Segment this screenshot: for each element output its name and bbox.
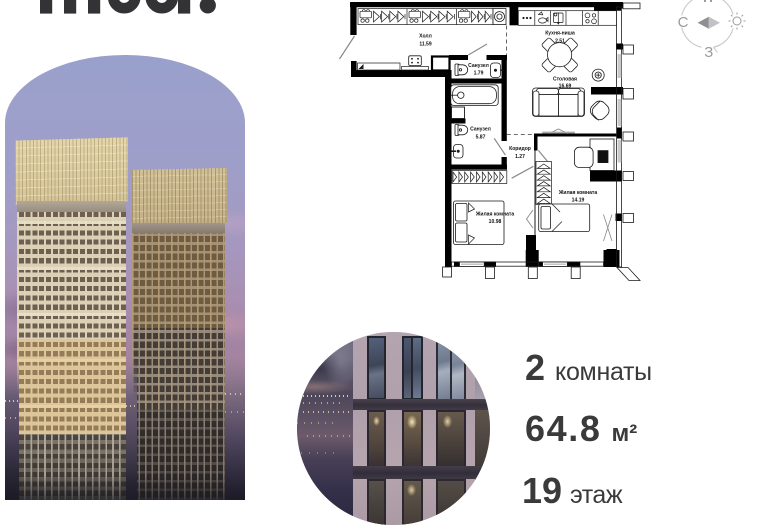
svg-text:5.87: 5.87 — [476, 135, 486, 141]
svg-text:Жилая комната: Жилая комната — [475, 212, 515, 218]
svg-text:1.27: 1.27 — [515, 154, 525, 160]
svg-text:2.51: 2.51 — [555, 39, 565, 45]
svg-text:Санузел: Санузел — [470, 127, 491, 133]
svg-text:Холл: Холл — [419, 34, 432, 40]
svg-text:14.19: 14.19 — [572, 198, 585, 204]
svg-text:Жилая комната: Жилая комната — [558, 190, 598, 196]
svg-text:Коридор: Коридор — [509, 146, 531, 152]
svg-text:16.69: 16.69 — [559, 84, 572, 90]
svg-text:Кухня-ниша: Кухня-ниша — [545, 31, 575, 37]
svg-text:З: З — [704, 44, 713, 61]
svg-text:Столовая: Столовая — [553, 77, 577, 83]
svg-text:11.59: 11.59 — [419, 42, 432, 48]
svg-text:Санузел: Санузел — [468, 63, 489, 69]
svg-text:1.79: 1.79 — [474, 71, 484, 77]
svg-text:10.98: 10.98 — [489, 219, 502, 225]
svg-text:С: С — [678, 14, 689, 31]
